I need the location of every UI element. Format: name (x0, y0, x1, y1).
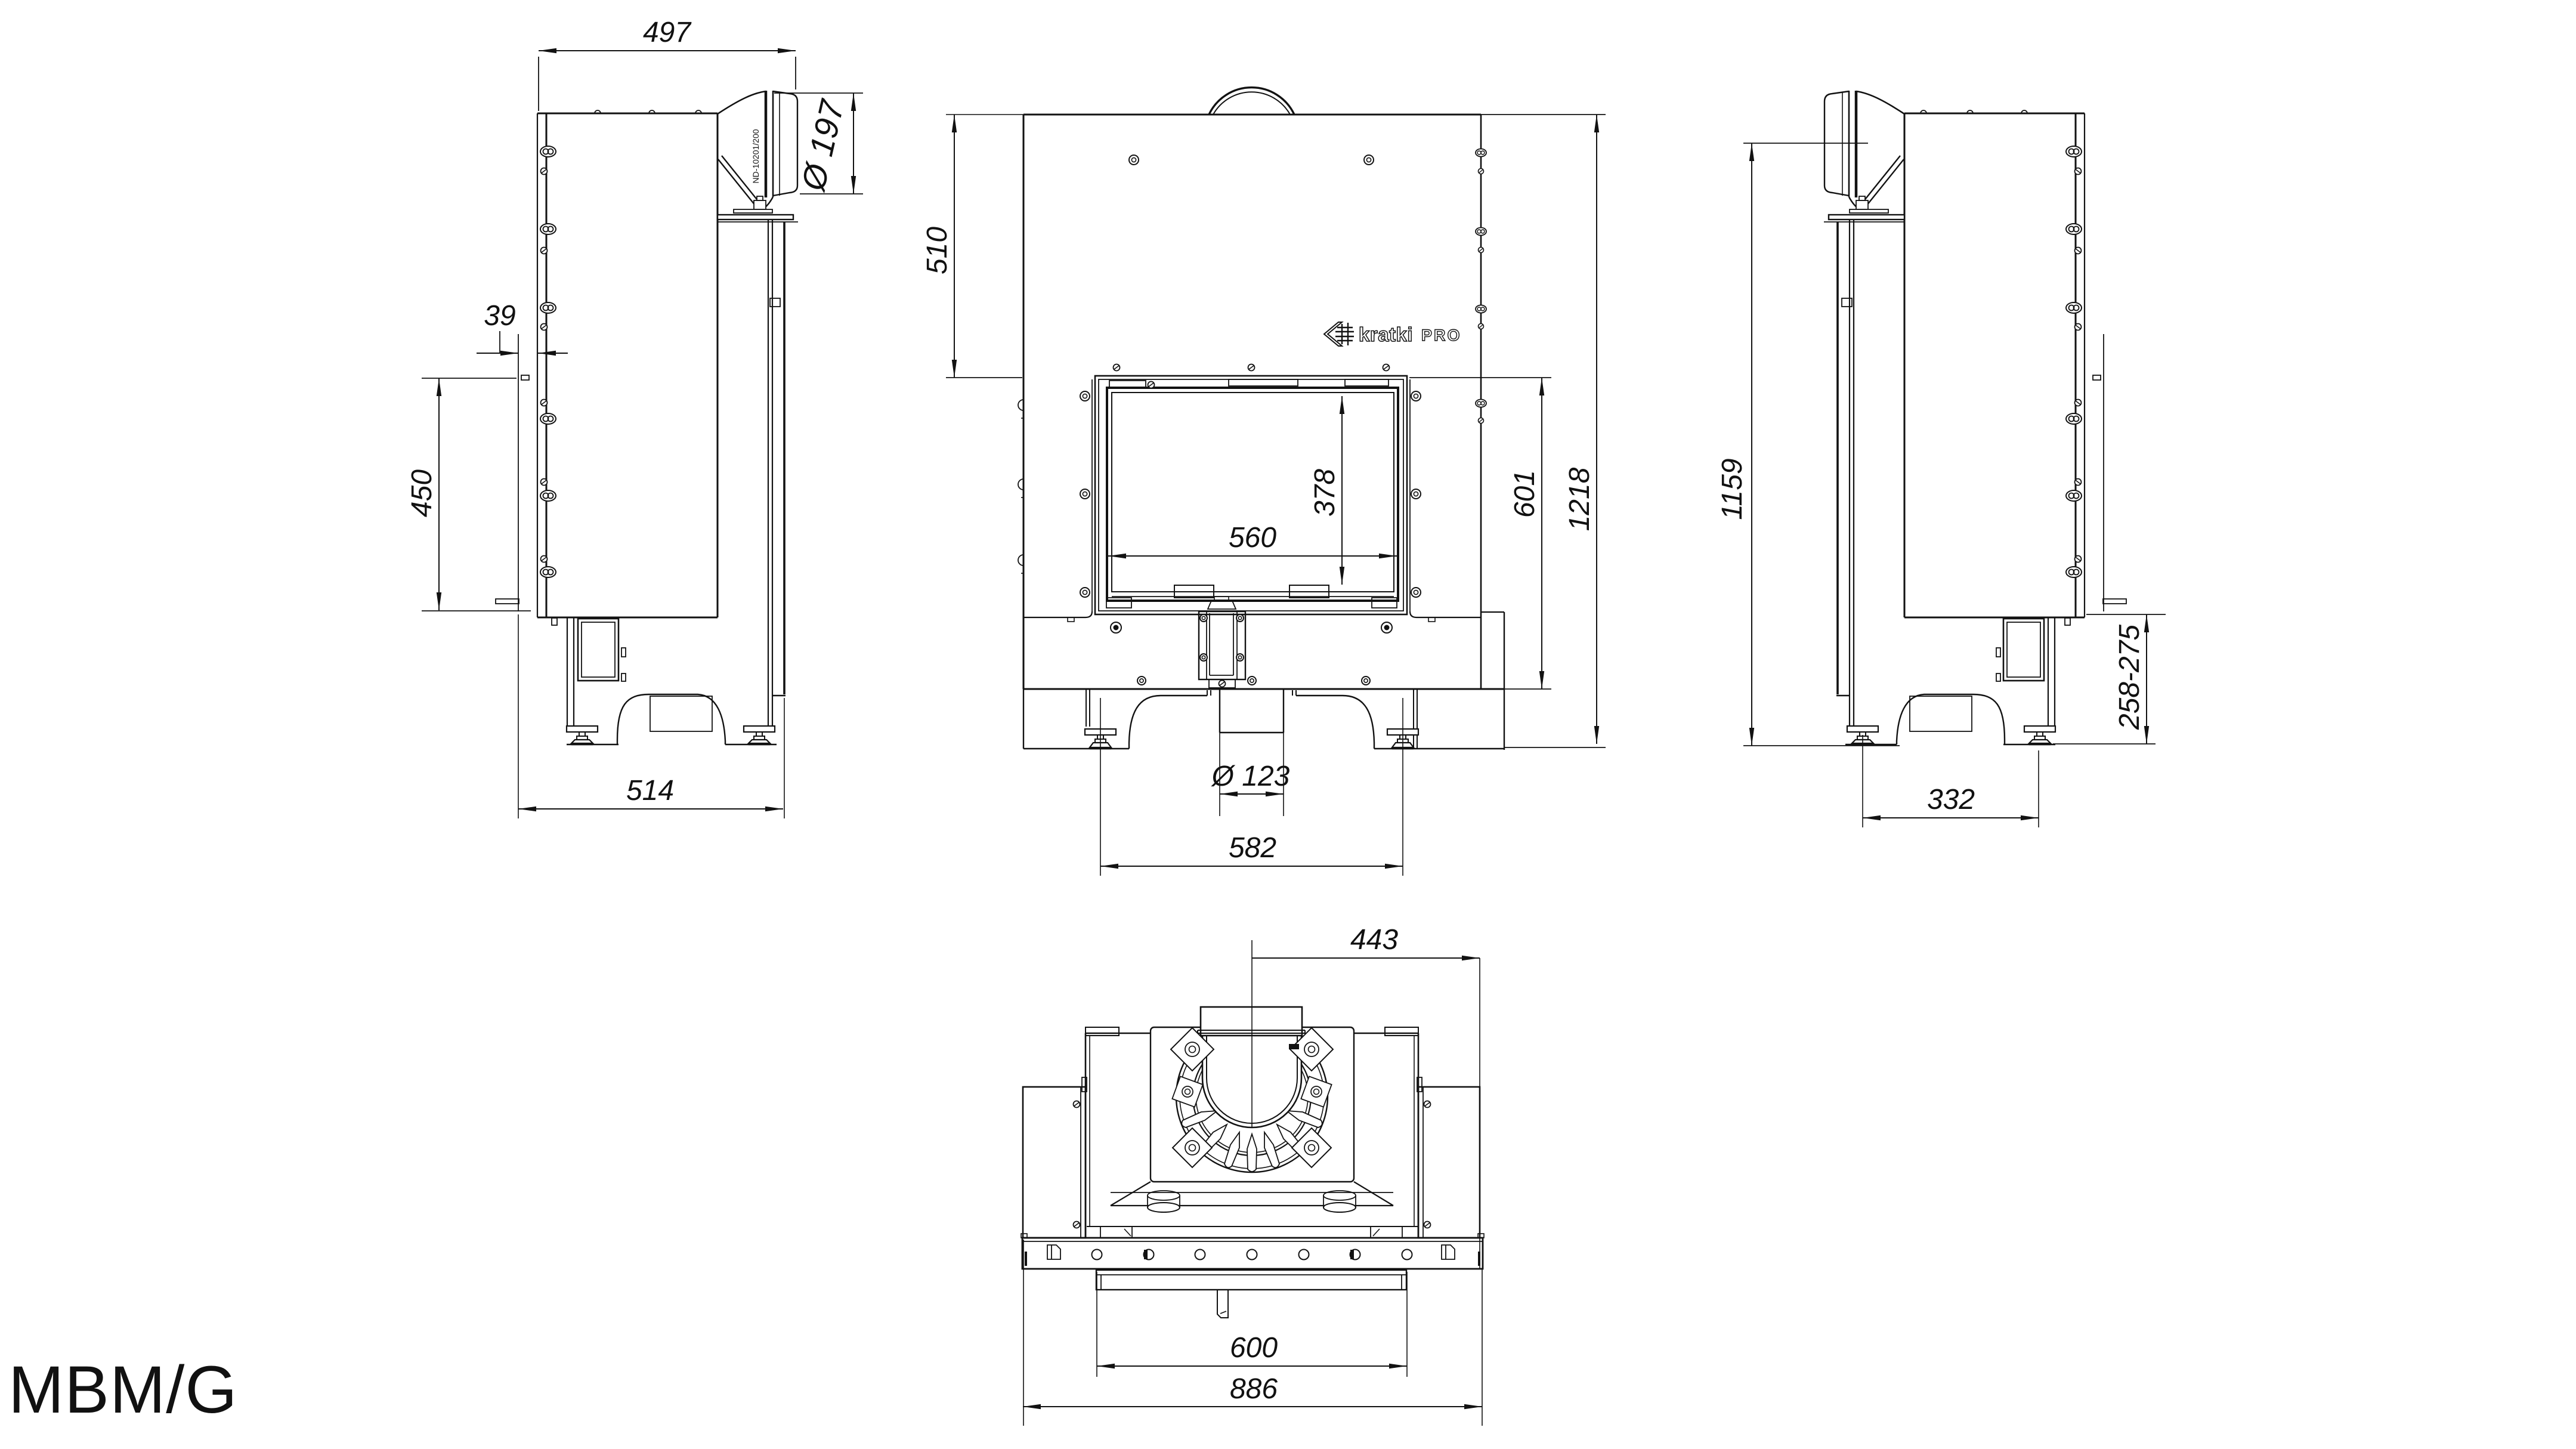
svg-text:1159: 1159 (1717, 458, 1748, 520)
svg-text:332: 332 (1927, 784, 1975, 815)
svg-text:497: 497 (643, 17, 692, 48)
svg-text:ND-10201/200: ND-10201/200 (751, 129, 760, 183)
svg-text:258-275: 258-275 (2114, 625, 2145, 730)
svg-text:450: 450 (406, 469, 438, 517)
svg-text:600: 600 (1230, 1332, 1278, 1364)
svg-text:PRO: PRO (1421, 326, 1462, 344)
svg-text:kratki: kratki (1359, 323, 1413, 345)
svg-text:MBM/G: MBM/G (8, 1352, 238, 1427)
svg-text:378: 378 (1309, 469, 1341, 517)
svg-text:560: 560 (1229, 522, 1276, 554)
svg-text:886: 886 (1230, 1373, 1278, 1405)
svg-text:1218: 1218 (1564, 467, 1595, 531)
svg-text:443: 443 (1350, 924, 1398, 956)
svg-text:601: 601 (1509, 470, 1541, 518)
svg-text:514: 514 (626, 775, 674, 807)
svg-text:510: 510 (921, 227, 953, 274)
svg-text:582: 582 (1229, 832, 1276, 864)
svg-text:39: 39 (484, 300, 515, 332)
svg-text:Ø 123: Ø 123 (1211, 761, 1290, 792)
